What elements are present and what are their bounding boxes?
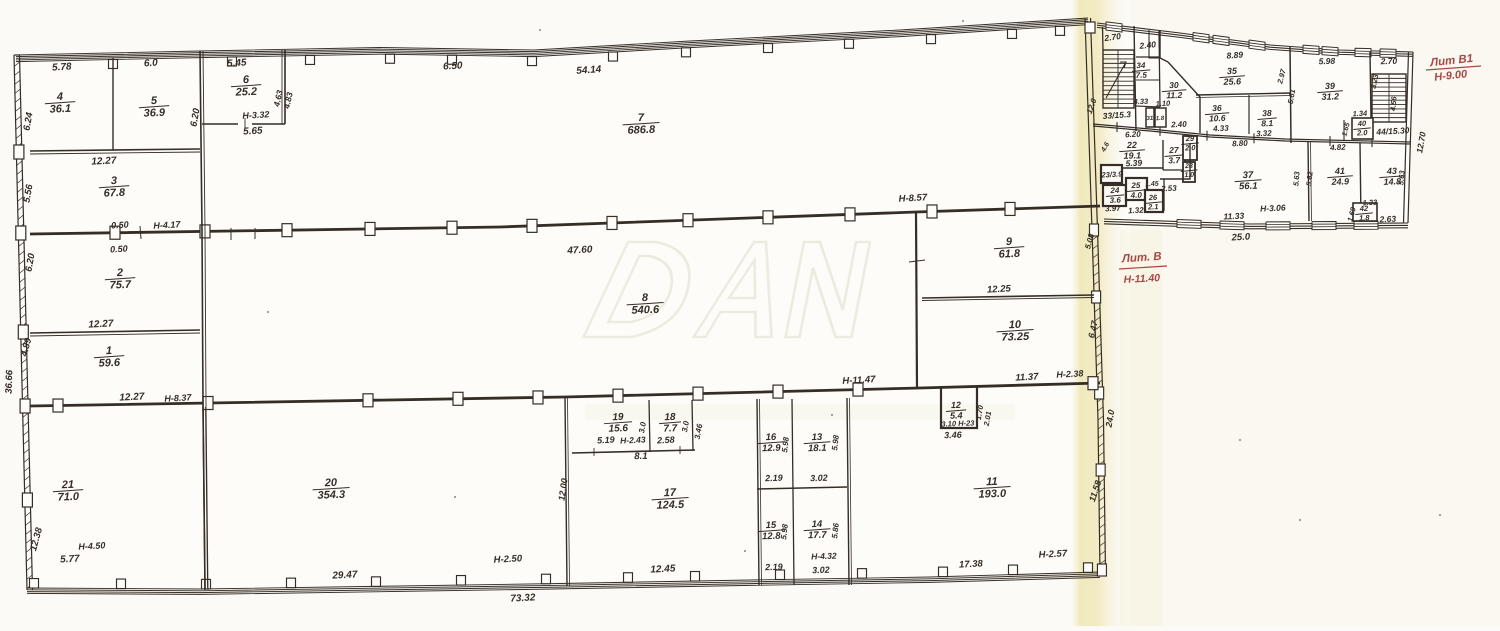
svg-text:33/15.3: 33/15.3 — [1102, 109, 1131, 121]
svg-text:13: 13 — [811, 432, 823, 443]
svg-text:5.62: 5.62 — [1304, 170, 1314, 186]
svg-text:56.1: 56.1 — [1239, 181, 1258, 193]
svg-text:1.10: 1.10 — [1155, 99, 1171, 109]
svg-text:20: 20 — [324, 477, 339, 489]
svg-text:193.0: 193.0 — [978, 488, 1007, 501]
svg-text:Н-11.40: Н-11.40 — [1123, 272, 1160, 286]
svg-text:24.9: 24.9 — [1330, 176, 1349, 187]
svg-text:1: 1 — [106, 345, 113, 357]
svg-text:12.9: 12.9 — [762, 443, 782, 455]
svg-text:8.80: 8.80 — [1232, 139, 1249, 149]
svg-text:8.1: 8.1 — [1261, 118, 1273, 128]
svg-text:34: 34 — [1136, 61, 1146, 70]
svg-text:11.37: 11.37 — [1015, 371, 1039, 383]
svg-text:23/3.9: 23/3.9 — [1100, 169, 1123, 179]
svg-text:2.0: 2.0 — [1356, 128, 1369, 137]
svg-text:25.6: 25.6 — [1222, 76, 1242, 87]
svg-text:25: 25 — [1130, 181, 1141, 190]
svg-text:4: 4 — [56, 91, 64, 103]
svg-text:354.3: 354.3 — [317, 489, 345, 502]
svg-text:29: 29 — [1185, 134, 1195, 143]
svg-text:3: 3 — [111, 175, 118, 187]
svg-text:Н-2.43: Н-2.43 — [620, 434, 646, 445]
svg-text:10: 10 — [1009, 319, 1023, 331]
svg-text:5.39: 5.39 — [1125, 158, 1142, 169]
svg-text:2.40: 2.40 — [1138, 39, 1157, 51]
svg-text:12.27: 12.27 — [88, 318, 114, 330]
svg-text:12: 12 — [951, 400, 961, 410]
svg-text:Н-8.37: Н-8.37 — [164, 392, 192, 403]
svg-text:43: 43 — [1386, 166, 1397, 176]
svg-text:Н-2.38: Н-2.38 — [1056, 368, 1084, 379]
svg-text:7.5: 7.5 — [1136, 71, 1148, 80]
svg-text:Н-2.50: Н-2.50 — [493, 553, 523, 566]
svg-text:4.33: 4.33 — [1132, 97, 1149, 107]
svg-text:0.50: 0.50 — [111, 220, 129, 231]
svg-text:10.6: 10.6 — [1209, 113, 1226, 124]
svg-text:7.7: 7.7 — [663, 423, 678, 434]
svg-text:Н-11.47: Н-11.47 — [842, 374, 876, 387]
svg-text:37: 37 — [1242, 170, 1254, 181]
svg-text:1.45: 1.45 — [1145, 181, 1159, 189]
svg-text:4.33: 4.33 — [1212, 124, 1230, 134]
svg-text:5.19: 5.19 — [597, 435, 615, 446]
svg-text:22: 22 — [1126, 140, 1137, 150]
svg-text:4.0: 4.0 — [1130, 191, 1143, 200]
svg-text:21: 21 — [61, 479, 75, 491]
svg-text:17.38: 17.38 — [959, 558, 984, 570]
svg-text:11.33: 11.33 — [1223, 210, 1244, 221]
svg-text:5.65: 5.65 — [243, 125, 263, 137]
svg-text:26: 26 — [1148, 193, 1158, 202]
svg-text:2.0: 2.0 — [1184, 143, 1197, 152]
svg-text:1.34: 1.34 — [1352, 109, 1368, 119]
svg-text:36: 36 — [1212, 103, 1222, 113]
svg-text:25.0: 25.0 — [1230, 231, 1251, 243]
svg-text:18: 18 — [664, 412, 676, 423]
svg-text:47.60: 47.60 — [566, 244, 593, 256]
svg-text:2.19: 2.19 — [764, 562, 783, 573]
svg-text:5.77: 5.77 — [60, 553, 80, 565]
svg-text:5.63: 5.63 — [1396, 169, 1406, 185]
svg-text:18.1: 18.1 — [808, 443, 827, 455]
svg-text:11: 11 — [986, 476, 998, 488]
svg-text:3.7: 3.7 — [1168, 155, 1181, 165]
svg-text:8.89: 8.89 — [1226, 49, 1243, 60]
svg-text:36.1: 36.1 — [49, 103, 71, 116]
svg-text:61.8: 61.8 — [998, 248, 1021, 261]
svg-text:8.1: 8.1 — [634, 451, 648, 462]
svg-text:16: 16 — [765, 432, 777, 443]
svg-text:Н-8.57: Н-8.57 — [898, 192, 928, 205]
svg-text:5.98: 5.98 — [1318, 56, 1335, 67]
svg-text:1.0: 1.0 — [1184, 172, 1194, 179]
svg-text:17.7: 17.7 — [808, 530, 828, 542]
svg-text:Н-4.17: Н-4.17 — [153, 219, 181, 230]
svg-text:2.58: 2.58 — [656, 435, 675, 446]
svg-text:71.0: 71.0 — [57, 491, 80, 504]
svg-text:59.6: 59.6 — [98, 357, 121, 370]
svg-text:5.63: 5.63 — [1291, 170, 1301, 186]
svg-text:44/15.30: 44/15.30 — [1375, 125, 1410, 137]
svg-text:73.32: 73.32 — [510, 592, 536, 604]
svg-text:31: 31 — [1146, 116, 1154, 122]
svg-text:5.98: 5.98 — [780, 436, 791, 453]
svg-text:73.25: 73.25 — [1001, 331, 1030, 344]
svg-text:1.33: 1.33 — [1362, 198, 1378, 208]
svg-text:6.20: 6.20 — [1125, 130, 1142, 140]
svg-text:3.32: 3.32 — [1256, 129, 1273, 139]
svg-text:3.02: 3.02 — [812, 565, 830, 576]
svg-text:3.02: 3.02 — [810, 473, 828, 484]
svg-text:6.0: 6.0 — [144, 58, 159, 70]
svg-text:24: 24 — [1109, 186, 1120, 195]
svg-text:75.7: 75.7 — [109, 279, 132, 292]
svg-text:Н-2.57: Н-2.57 — [1038, 548, 1068, 561]
svg-text:30: 30 — [1169, 80, 1179, 90]
svg-text:12.45: 12.45 — [650, 563, 676, 575]
svg-text:27: 27 — [1168, 145, 1180, 155]
svg-text:Н-4.32: Н-4.32 — [811, 551, 837, 562]
svg-text:686.8: 686.8 — [627, 124, 656, 137]
svg-text:2.63: 2.63 — [1378, 214, 1396, 225]
svg-text:12.27: 12.27 — [119, 391, 145, 403]
svg-text:17: 17 — [664, 487, 678, 499]
svg-text:14: 14 — [811, 519, 823, 530]
svg-text:5.86: 5.86 — [830, 522, 841, 539]
svg-text:29.47: 29.47 — [331, 569, 358, 581]
svg-text:2.19: 2.19 — [764, 473, 783, 484]
svg-text:2.53: 2.53 — [1160, 184, 1178, 194]
svg-text:31.2: 31.2 — [1321, 91, 1339, 102]
svg-text:36.9: 36.9 — [143, 107, 166, 120]
svg-text:3.10 Н-23: 3.10 Н-23 — [941, 418, 975, 428]
svg-text:6.50: 6.50 — [443, 60, 464, 72]
svg-text:4.82: 4.82 — [1329, 143, 1347, 153]
svg-text:39: 39 — [1325, 81, 1335, 91]
svg-text:36.66: 36.66 — [4, 369, 16, 394]
svg-text:15.6: 15.6 — [608, 423, 628, 435]
svg-text:5.98: 5.98 — [830, 434, 841, 451]
svg-text:40: 40 — [1357, 119, 1367, 128]
svg-text:0.50: 0.50 — [110, 244, 128, 255]
svg-text:15: 15 — [765, 520, 777, 531]
svg-text:5.45: 5.45 — [227, 57, 248, 69]
svg-text:5.78: 5.78 — [52, 61, 73, 73]
svg-text:Н-3.06: Н-3.06 — [1260, 202, 1286, 213]
svg-text:1.8: 1.8 — [1156, 116, 1165, 122]
svg-text:1.32: 1.32 — [1128, 206, 1145, 216]
svg-text:4.56: 4.56 — [1388, 95, 1398, 112]
svg-text:12.25: 12.25 — [987, 283, 1012, 295]
svg-text:124.5: 124.5 — [656, 499, 685, 512]
svg-text:2.40: 2.40 — [1170, 120, 1188, 130]
svg-text:2: 2 — [116, 267, 124, 279]
svg-text:540.6: 540.6 — [631, 304, 660, 317]
svg-text:5.98: 5.98 — [779, 523, 790, 540]
svg-text:Н-3.32: Н-3.32 — [242, 109, 270, 120]
svg-text:67.8: 67.8 — [103, 187, 126, 200]
svg-text:3.97: 3.97 — [1105, 204, 1122, 214]
svg-text:2.70: 2.70 — [1379, 56, 1397, 67]
svg-text:19: 19 — [612, 412, 624, 423]
svg-text:Н-4.50: Н-4.50 — [78, 540, 106, 551]
svg-text:28: 28 — [1184, 163, 1193, 170]
svg-text:1.8: 1.8 — [1359, 213, 1371, 222]
svg-text:12.27: 12.27 — [91, 155, 117, 167]
svg-text:2.1: 2.1 — [1147, 202, 1159, 211]
svg-text:41: 41 — [1334, 166, 1345, 176]
svg-text:3.46: 3.46 — [944, 430, 963, 441]
svg-text:38: 38 — [1262, 108, 1272, 118]
svg-text:25.2: 25.2 — [234, 86, 257, 99]
svg-text:54.14: 54.14 — [576, 64, 602, 77]
svg-text:35: 35 — [1227, 66, 1238, 76]
